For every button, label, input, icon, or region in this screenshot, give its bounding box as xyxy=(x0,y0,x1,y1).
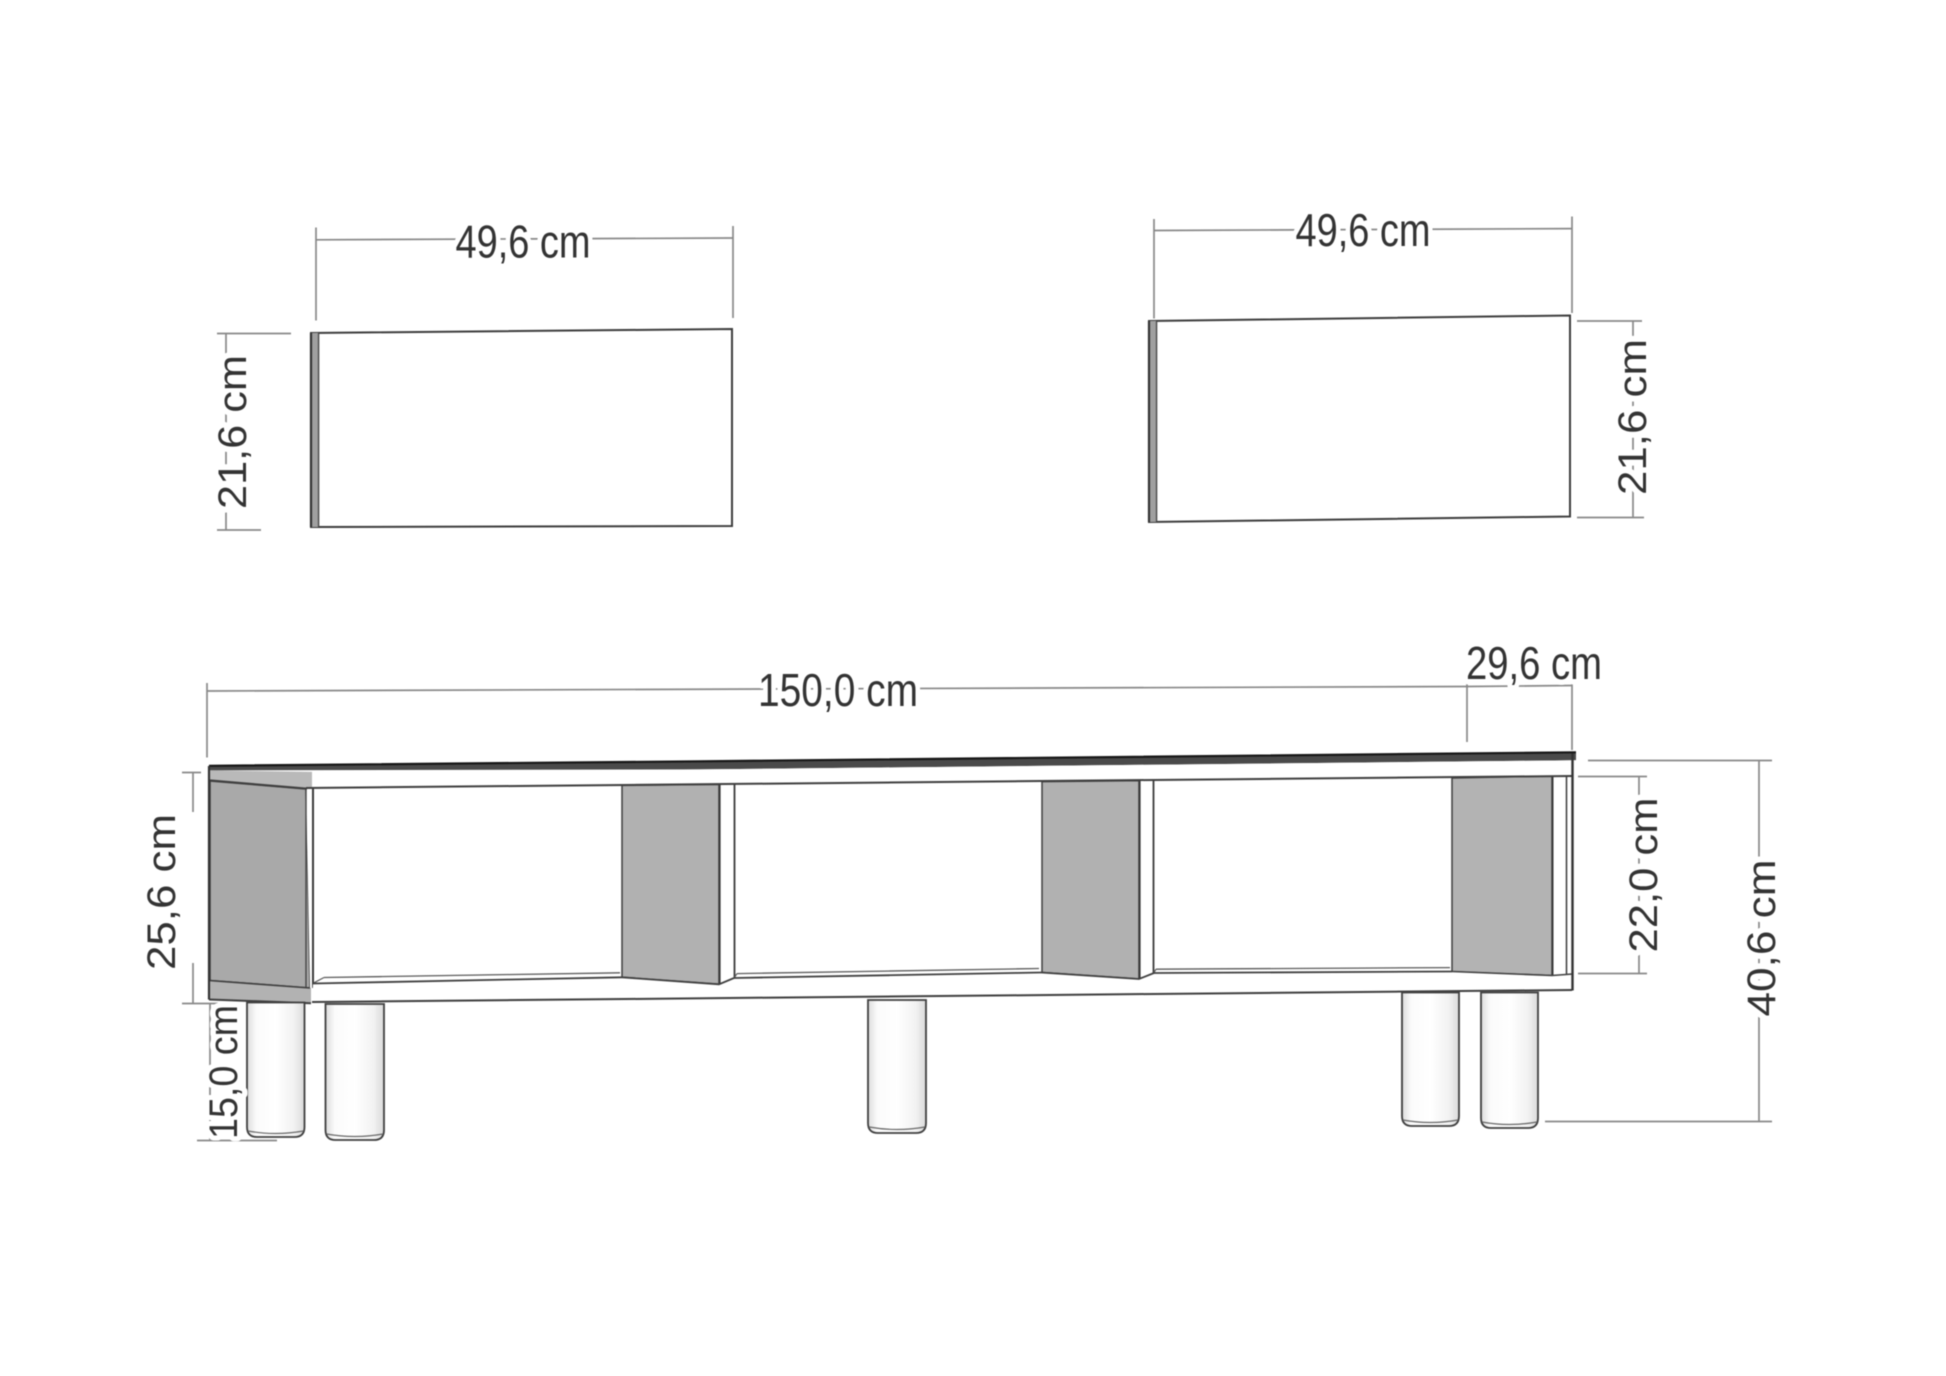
svg-text:150,0 cm: 150,0 cm xyxy=(758,664,918,716)
svg-text:29,6 cm: 29,6 cm xyxy=(1466,637,1602,689)
svg-text:49,6 cm: 49,6 cm xyxy=(456,216,591,268)
svg-text:40,6 cm: 40,6 cm xyxy=(1740,860,1784,1017)
svg-text:21,6 cm: 21,6 cm xyxy=(1611,339,1655,495)
svg-text:21,6 cm: 21,6 cm xyxy=(211,355,255,509)
svg-text:15,0 cm: 15,0 cm xyxy=(202,1005,246,1139)
svg-text:22,0 cm: 22,0 cm xyxy=(1622,798,1666,953)
svg-text:49,6 cm: 49,6 cm xyxy=(1296,204,1431,256)
svg-text:25,6 cm: 25,6 cm xyxy=(140,814,184,970)
